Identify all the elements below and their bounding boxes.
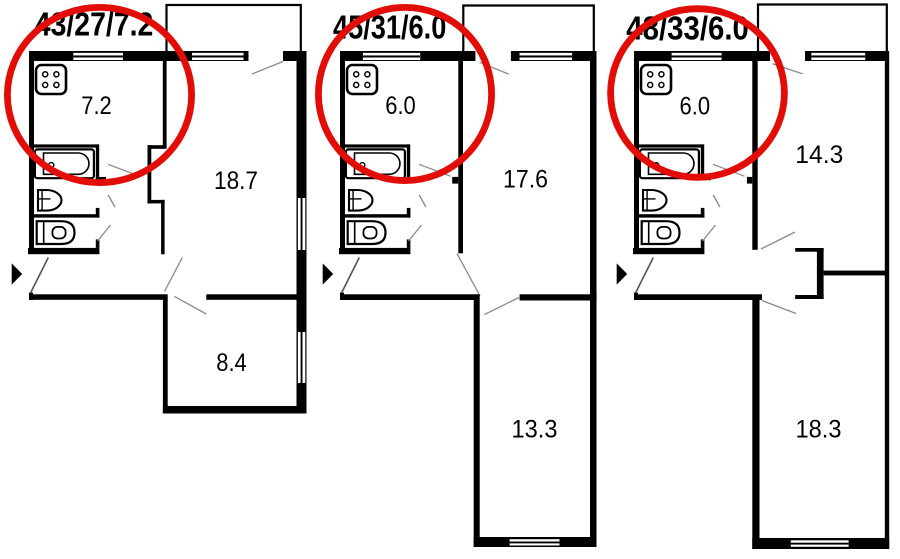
svg-text:18.7: 18.7 — [214, 168, 258, 195]
svg-text:6.0: 6.0 — [680, 94, 711, 121]
svg-text:6.0: 6.0 — [385, 93, 416, 120]
svg-text:18.3: 18.3 — [796, 417, 842, 444]
svg-text:13.3: 13.3 — [512, 417, 558, 444]
svg-text:8.4: 8.4 — [216, 350, 247, 377]
svg-text:7.2: 7.2 — [81, 93, 112, 120]
svg-text:14.3: 14.3 — [795, 142, 843, 169]
svg-text:17.6: 17.6 — [503, 167, 548, 194]
